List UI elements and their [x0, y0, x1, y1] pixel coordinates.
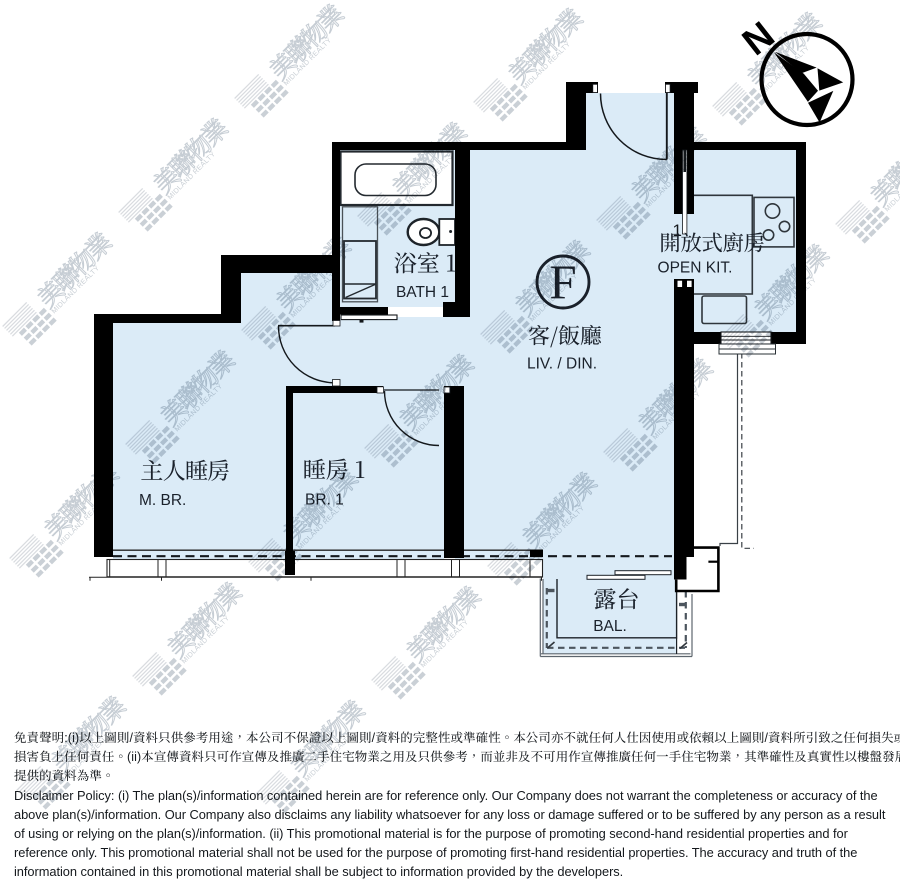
- svg-text:M. BR.: M. BR.: [139, 492, 186, 509]
- svg-text:BAL.: BAL.: [593, 618, 627, 635]
- svg-text:開放式廚房: 開放式廚房: [659, 227, 765, 258]
- svg-text:露台: 露台: [594, 582, 640, 615]
- svg-text:浴室 1: 浴室 1: [394, 246, 457, 279]
- svg-text:BATH 1: BATH 1: [396, 284, 449, 301]
- svg-text:客/飯廳: 客/飯廳: [528, 320, 602, 351]
- svg-text:LIV. / DIN.: LIV. / DIN.: [527, 356, 597, 373]
- svg-text:主人睡房: 主人睡房: [140, 453, 229, 486]
- svg-text:OPEN KIT.: OPEN KIT.: [658, 260, 733, 277]
